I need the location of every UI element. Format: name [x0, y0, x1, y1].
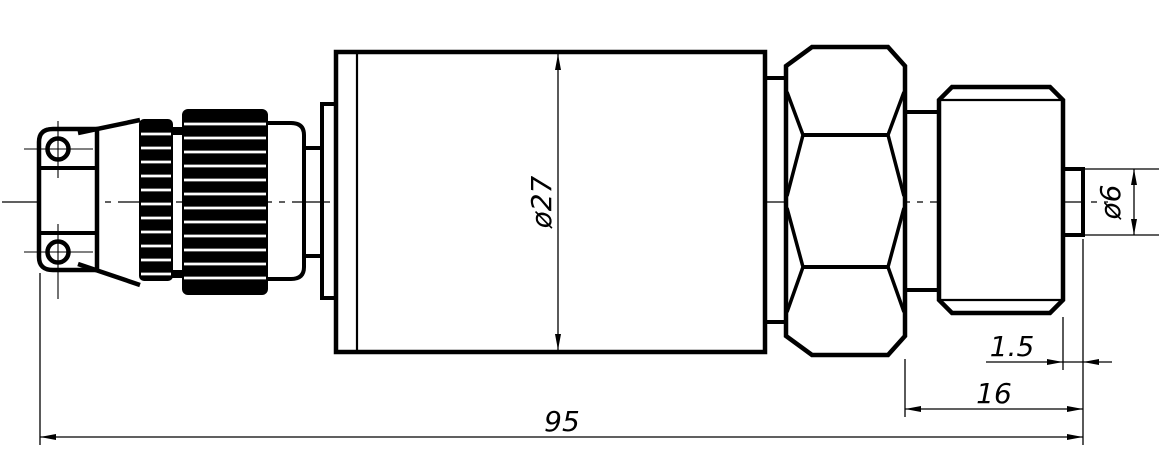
port-neck [905, 112, 939, 290]
dimension-label-tip-length: 1.5 [990, 330, 1035, 363]
knurled-ring-large [182, 109, 268, 295]
technical-drawing: ø27 ø6 1.5 16 95 [0, 0, 1162, 458]
dimension-port-length: 16 [905, 359, 1083, 417]
coupling-step [262, 123, 304, 279]
dimension-label-tip-diameter: ø6 [1094, 185, 1127, 221]
dimension-label-port-length: 16 [976, 377, 1012, 410]
dimension-label-body-diameter: ø27 [525, 175, 558, 229]
dimension-tip-diameter: ø6 [1085, 169, 1159, 235]
drawing-canvas: ø27 ø6 1.5 16 95 [0, 0, 1162, 458]
hex-nut [786, 47, 905, 355]
dimension-label-overall-length: 95 [544, 405, 580, 438]
spacer-washer [765, 78, 786, 322]
connector-bracket [24, 121, 97, 299]
pressure-port-body [939, 87, 1063, 313]
knurled-ring-small [139, 119, 173, 281]
